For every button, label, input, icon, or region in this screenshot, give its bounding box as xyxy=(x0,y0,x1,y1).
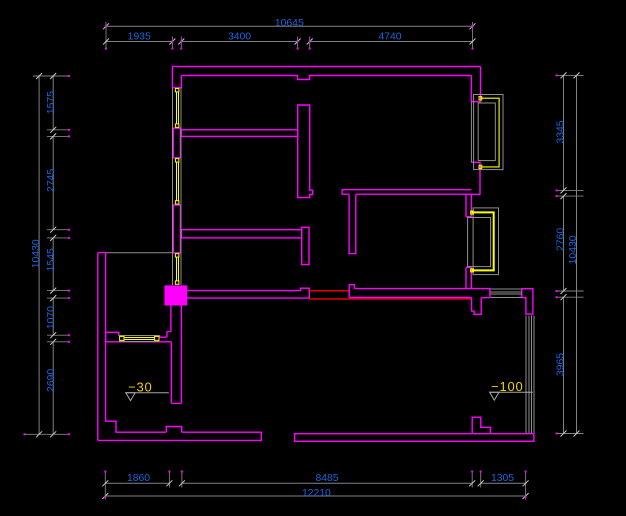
svg-text:8485: 8485 xyxy=(315,473,338,484)
svg-text:10645: 10645 xyxy=(275,18,304,29)
svg-text:10430: 10430 xyxy=(568,235,579,264)
svg-text:1305: 1305 xyxy=(491,473,514,484)
svg-text:−30: −30 xyxy=(128,380,152,395)
svg-text:10430: 10430 xyxy=(31,239,42,268)
svg-text:3965: 3965 xyxy=(555,353,566,376)
svg-text:1070: 1070 xyxy=(46,306,57,329)
svg-text:1545: 1545 xyxy=(46,248,57,271)
svg-text:1860: 1860 xyxy=(127,473,150,484)
svg-text:12210: 12210 xyxy=(302,488,331,499)
svg-text:2690: 2690 xyxy=(46,369,57,392)
svg-text:3400: 3400 xyxy=(228,32,251,43)
svg-text:−100: −100 xyxy=(491,379,523,394)
svg-text:2760: 2760 xyxy=(555,228,566,251)
svg-text:1935: 1935 xyxy=(128,32,151,43)
svg-text:3345: 3345 xyxy=(555,120,566,143)
svg-text:2745: 2745 xyxy=(46,169,57,192)
svg-text:4740: 4740 xyxy=(378,32,401,43)
svg-text:1575: 1575 xyxy=(46,91,57,114)
